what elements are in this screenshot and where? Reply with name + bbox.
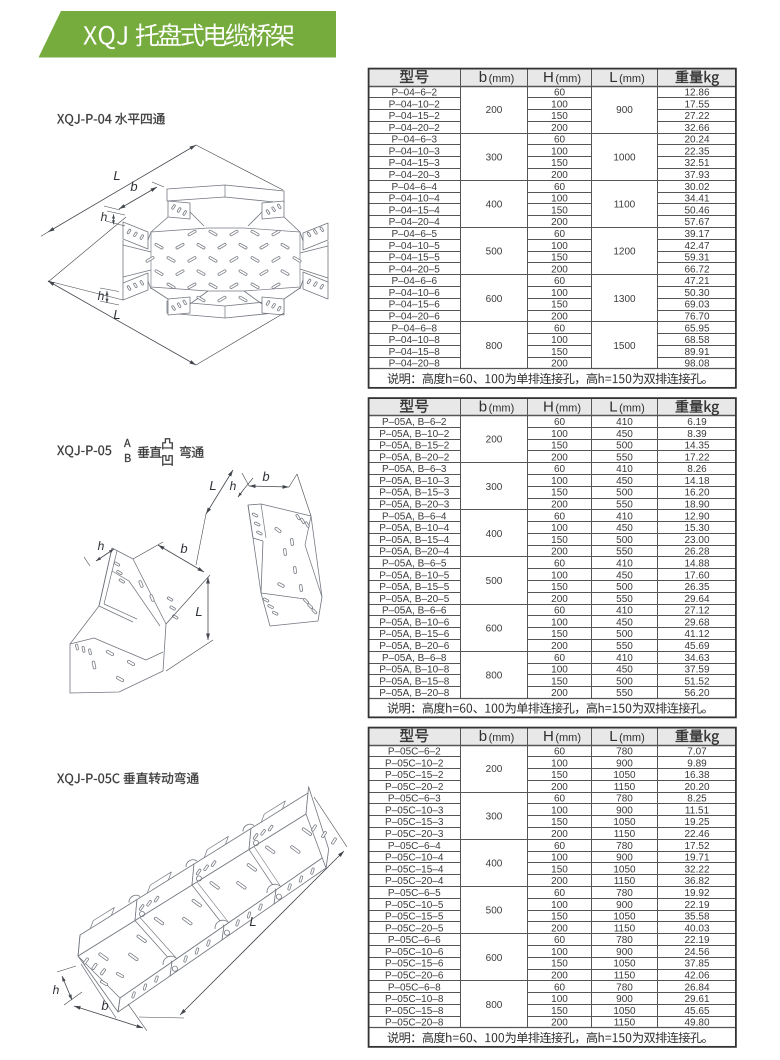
svg-text:P–04–20–8: P–04–20–8	[389, 359, 441, 370]
svg-text:19.71: 19.71	[684, 853, 709, 864]
svg-text:1150: 1150	[614, 876, 636, 887]
svg-text:200: 200	[551, 876, 568, 887]
svg-text:200: 200	[551, 971, 568, 982]
svg-text:P–04–20–2: P–04–20–2	[389, 123, 441, 134]
svg-text:150: 150	[551, 582, 568, 593]
svg-text:410: 410	[616, 653, 633, 664]
svg-text:b: b	[101, 998, 108, 1013]
svg-text:500: 500	[616, 676, 633, 687]
svg-text:410: 410	[616, 558, 633, 569]
svg-text:1050: 1050	[613, 864, 636, 875]
svg-text:98.08: 98.08	[684, 359, 709, 370]
svg-text:410: 410	[616, 606, 633, 617]
svg-text:h: h	[230, 479, 237, 493]
svg-text:P–04–15–3: P–04–15–3	[389, 158, 441, 169]
svg-text:12.86: 12.86	[684, 87, 709, 98]
svg-text:500: 500	[486, 576, 503, 587]
svg-text:780: 780	[616, 746, 633, 757]
svg-text:57.67: 57.67	[684, 217, 709, 228]
svg-text:17.60: 17.60	[684, 570, 709, 581]
svg-text:200: 200	[486, 105, 503, 116]
svg-text:37.59: 37.59	[684, 665, 709, 676]
svg-text:P–05C–15–5: P–05C–15–5	[385, 912, 444, 923]
svg-text:P–05C–15–6: P–05C–15–6	[385, 959, 444, 970]
svg-text:39.17: 39.17	[684, 229, 709, 240]
svg-text:P–05A, B–6–8: P–05A, B–6–8	[382, 653, 447, 664]
svg-text:P–05A, B–6–2: P–05A, B–6–2	[382, 417, 447, 428]
svg-text:200: 200	[486, 764, 503, 775]
svg-text:9.89: 9.89	[687, 758, 707, 769]
svg-text:P–05C–20–5: P–05C–20–5	[385, 923, 444, 934]
svg-text:8.25: 8.25	[687, 794, 707, 805]
svg-text:400: 400	[486, 529, 503, 540]
svg-text:51.52: 51.52	[684, 676, 709, 687]
svg-text:P–05C–15–4: P–05C–15–4	[385, 864, 444, 875]
svg-text:36.82: 36.82	[684, 876, 709, 887]
svg-text:900: 900	[616, 805, 633, 816]
svg-text:P–05A, B–15–5: P–05A, B–15–5	[379, 582, 449, 593]
svg-text:16.38: 16.38	[684, 770, 709, 781]
svg-text:(mm): (mm)	[555, 402, 581, 414]
svg-text:P–04–6–2: P–04–6–2	[391, 87, 437, 98]
svg-text:H: H	[543, 69, 554, 86]
svg-text:450: 450	[616, 665, 633, 676]
svg-text:22.35: 22.35	[684, 146, 709, 157]
svg-text:1050: 1050	[613, 959, 636, 970]
svg-text:200: 200	[551, 829, 568, 840]
svg-text:L: L	[113, 168, 120, 183]
svg-text:600: 600	[486, 623, 503, 634]
svg-text:450: 450	[616, 523, 633, 534]
svg-text:60: 60	[554, 135, 566, 146]
svg-text:900: 900	[616, 853, 633, 864]
svg-text:P–04–20–6: P–04–20–6	[389, 312, 441, 323]
svg-text:P–05A, B–15–2: P–05A, B–15–2	[379, 441, 449, 452]
svg-text:500: 500	[616, 582, 633, 593]
svg-text:150: 150	[551, 441, 568, 452]
svg-text:P–04–6–8: P–04–6–8	[391, 323, 437, 334]
svg-text:1150: 1150	[614, 782, 636, 793]
svg-text:100: 100	[551, 523, 568, 534]
svg-text:P–04–15–2: P–04–15–2	[389, 111, 441, 122]
svg-text:1000: 1000	[613, 152, 636, 163]
svg-text:100: 100	[551, 994, 568, 1005]
svg-text:P–05C–10–4: P–05C–10–4	[385, 853, 444, 864]
svg-text:P–04–15–8: P–04–15–8	[389, 347, 441, 358]
svg-text:P–05A, B–20–8: P–05A, B–20–8	[379, 688, 449, 699]
svg-text:66.72: 66.72	[684, 264, 709, 275]
svg-text:60: 60	[554, 935, 566, 946]
svg-text:900: 900	[616, 900, 633, 911]
svg-text:550: 550	[616, 688, 633, 699]
svg-text:150: 150	[551, 1006, 568, 1017]
svg-text:14.18: 14.18	[684, 476, 709, 487]
svg-text:150: 150	[551, 158, 568, 169]
svg-text:22.19: 22.19	[684, 935, 709, 946]
svg-text:1500: 1500	[613, 341, 636, 352]
svg-text:P–04–6–4: P–04–6–4	[391, 182, 437, 193]
svg-text:1150: 1150	[614, 829, 636, 840]
svg-text:56.20: 56.20	[684, 688, 709, 699]
svg-text:P–05A, B–15–8: P–05A, B–15–8	[379, 676, 449, 687]
svg-text:b: b	[130, 179, 137, 194]
svg-text:P–05C–6–4: P–05C–6–4	[388, 841, 441, 852]
svg-text:1050: 1050	[613, 1006, 636, 1017]
svg-text:1200: 1200	[613, 247, 636, 258]
svg-text:200: 200	[551, 500, 568, 511]
svg-text:37.93: 37.93	[684, 170, 709, 181]
svg-text:19.25: 19.25	[684, 817, 709, 828]
svg-text:6.19: 6.19	[687, 417, 707, 428]
svg-text:550: 550	[616, 594, 633, 605]
svg-text:200: 200	[551, 452, 568, 463]
svg-text:P–05C–6–6: P–05C–6–6	[388, 935, 441, 946]
svg-text:45.69: 45.69	[684, 641, 709, 652]
svg-text:P–04–15–5: P–04–15–5	[389, 253, 441, 264]
svg-text:P–04–10–5: P–04–10–5	[389, 241, 441, 252]
svg-text:45.65: 45.65	[684, 1006, 709, 1017]
svg-text:P–05C–6–2: P–05C–6–2	[388, 746, 441, 757]
svg-text:16.20: 16.20	[684, 488, 709, 499]
svg-text:b: b	[479, 399, 487, 416]
svg-text:P–05A, B–6–5: P–05A, B–6–5	[382, 558, 447, 569]
svg-text:200: 200	[486, 435, 503, 446]
svg-text:24.56: 24.56	[684, 947, 709, 958]
svg-text:100: 100	[551, 99, 568, 110]
svg-text:(mm): (mm)	[489, 732, 515, 744]
svg-text:P–04–20–5: P–04–20–5	[389, 264, 441, 275]
svg-text:100: 100	[551, 853, 568, 864]
svg-text:150: 150	[551, 300, 568, 311]
svg-text:P–05A, B–10–6: P–05A, B–10–6	[379, 617, 449, 628]
svg-text:P–05C–20–4: P–05C–20–4	[385, 876, 444, 887]
svg-text:200: 200	[551, 217, 568, 228]
svg-text:P–05A, B–6–4: P–05A, B–6–4	[382, 511, 447, 522]
svg-text:29.64: 29.64	[684, 594, 709, 605]
svg-text:68.58: 68.58	[684, 335, 709, 346]
svg-text:35.58: 35.58	[684, 912, 709, 923]
svg-text:60: 60	[554, 746, 566, 757]
svg-text:29.61: 29.61	[684, 994, 709, 1005]
svg-text:100: 100	[551, 429, 568, 440]
svg-text:150: 150	[551, 535, 568, 546]
svg-text:300: 300	[486, 482, 503, 493]
svg-text:P–05C–10–8: P–05C–10–8	[385, 994, 444, 1005]
svg-text:400: 400	[486, 859, 503, 870]
svg-text:b: b	[262, 469, 269, 484]
svg-text:14.88: 14.88	[684, 558, 709, 569]
svg-text:100: 100	[551, 665, 568, 676]
svg-text:100: 100	[551, 335, 568, 346]
svg-text:410: 410	[616, 417, 633, 428]
svg-text:150: 150	[551, 912, 568, 923]
svg-text:32.51: 32.51	[684, 158, 709, 169]
svg-text:780: 780	[616, 888, 633, 899]
svg-text:1050: 1050	[613, 770, 636, 781]
svg-text:60: 60	[554, 982, 566, 993]
svg-text:(mm): (mm)	[489, 73, 515, 85]
svg-text:150: 150	[551, 205, 568, 216]
svg-text:34.63: 34.63	[684, 653, 709, 664]
svg-text:100: 100	[551, 570, 568, 581]
svg-text:P–05A, B–20–3: P–05A, B–20–3	[379, 500, 449, 511]
svg-text:26.35: 26.35	[684, 582, 709, 593]
svg-text:150: 150	[551, 629, 568, 640]
svg-text:P–04–10–2: P–04–10–2	[389, 99, 441, 110]
svg-text:P–05C–10–5: P–05C–10–5	[385, 900, 444, 911]
svg-text:22.19: 22.19	[684, 900, 709, 911]
svg-text:410: 410	[616, 511, 633, 522]
svg-text:P–05C–15–3: P–05C–15–3	[385, 817, 444, 828]
svg-text:b: b	[180, 541, 187, 556]
svg-text:(mm): (mm)	[555, 732, 581, 744]
svg-text:L: L	[195, 604, 202, 619]
svg-text:P–05A, B–20–5: P–05A, B–20–5	[379, 594, 449, 605]
svg-text:12.90: 12.90	[684, 511, 709, 522]
svg-text:37.85: 37.85	[684, 959, 709, 970]
svg-text:200: 200	[551, 123, 568, 134]
svg-text:100: 100	[551, 476, 568, 487]
svg-text:27.22: 27.22	[684, 111, 709, 122]
svg-text:76.70: 76.70	[684, 312, 709, 323]
svg-text:(mm): (mm)	[489, 402, 515, 414]
svg-text:100: 100	[551, 194, 568, 205]
svg-text:h: h	[98, 539, 105, 553]
svg-text:L: L	[209, 478, 216, 493]
svg-text:49.80: 49.80	[684, 1018, 709, 1029]
svg-text:900: 900	[616, 758, 633, 769]
svg-text:P–05C–15–2: P–05C–15–2	[385, 770, 444, 781]
svg-text:500: 500	[616, 629, 633, 640]
svg-text:11.51: 11.51	[685, 805, 710, 816]
svg-text:100: 100	[551, 288, 568, 299]
svg-text:b: b	[479, 69, 487, 86]
svg-text:200: 200	[551, 170, 568, 181]
svg-text:200: 200	[551, 688, 568, 699]
svg-text:P–04–6–5: P–04–6–5	[391, 229, 437, 240]
svg-text:18.90: 18.90	[684, 500, 709, 511]
svg-text:L: L	[249, 914, 256, 929]
svg-text:150: 150	[551, 488, 568, 499]
svg-text:200: 200	[551, 923, 568, 934]
svg-text:19.92: 19.92	[684, 888, 709, 899]
svg-text:P–05A, B–10–3: P–05A, B–10–3	[379, 476, 449, 487]
svg-text:150: 150	[551, 817, 568, 828]
svg-text:P–05A, B–20–2: P–05A, B–20–2	[379, 452, 449, 463]
svg-text:200: 200	[551, 641, 568, 652]
svg-text:P–04–10–6: P–04–10–6	[389, 288, 441, 299]
svg-text:550: 550	[616, 641, 633, 652]
svg-text:200: 200	[551, 782, 568, 793]
svg-text:900: 900	[616, 947, 633, 958]
svg-text:P–05C–6–8: P–05C–6–8	[388, 982, 441, 993]
svg-text:P–05C–20–6: P–05C–20–6	[385, 971, 444, 982]
svg-text:1050: 1050	[613, 912, 636, 923]
svg-text:60: 60	[554, 653, 566, 664]
svg-text:450: 450	[616, 570, 633, 581]
svg-text:P–04–15–6: P–04–15–6	[389, 300, 441, 311]
svg-text:100: 100	[551, 146, 568, 157]
svg-text:P–05A, B–10–8: P–05A, B–10–8	[379, 665, 449, 676]
svg-text:780: 780	[616, 794, 633, 805]
svg-text:P–05A, B–6–3: P–05A, B–6–3	[382, 464, 447, 475]
svg-text:L: L	[609, 69, 617, 86]
svg-text:60: 60	[554, 794, 566, 805]
svg-text:42.06: 42.06	[684, 971, 709, 982]
svg-text:200: 200	[551, 312, 568, 323]
svg-text:100: 100	[551, 947, 568, 958]
svg-text:60: 60	[554, 229, 566, 240]
svg-text:P–04–6–6: P–04–6–6	[391, 276, 437, 287]
svg-text:P–05C–20–3: P–05C–20–3	[385, 829, 444, 840]
svg-text:P–04–20–4: P–04–20–4	[389, 217, 441, 228]
svg-text:100: 100	[551, 241, 568, 252]
svg-text:26.28: 26.28	[684, 547, 709, 558]
svg-text:500: 500	[616, 535, 633, 546]
svg-text:P–05A, B–20–4: P–05A, B–20–4	[379, 547, 449, 558]
svg-text:8.39: 8.39	[687, 429, 707, 440]
svg-text:69.03: 69.03	[684, 300, 709, 311]
svg-text:200: 200	[551, 1018, 568, 1029]
svg-text:P–05C–10–6: P–05C–10–6	[385, 947, 444, 958]
svg-text:60: 60	[554, 323, 566, 334]
svg-text:100: 100	[551, 900, 568, 911]
svg-text:17.22: 17.22	[684, 452, 709, 463]
svg-text:P–05C–6–5: P–05C–6–5	[388, 888, 441, 899]
svg-text:47.21: 47.21	[684, 276, 709, 287]
svg-text:H: H	[543, 399, 554, 416]
svg-text:22.46: 22.46	[684, 829, 709, 840]
svg-text:60: 60	[554, 87, 566, 98]
svg-text:(mm): (mm)	[619, 732, 645, 744]
svg-text:(mm): (mm)	[555, 73, 581, 85]
svg-text:800: 800	[486, 341, 503, 352]
svg-text:89.91: 89.91	[684, 347, 709, 358]
svg-text:800: 800	[486, 670, 503, 681]
svg-text:1050: 1050	[613, 817, 636, 828]
svg-text:60: 60	[554, 606, 566, 617]
svg-text:17.55: 17.55	[684, 99, 709, 110]
svg-text:30.02: 30.02	[684, 182, 709, 193]
svg-text:40.03: 40.03	[684, 923, 709, 934]
svg-text:400: 400	[486, 200, 503, 211]
svg-text:150: 150	[551, 111, 568, 122]
svg-text:60: 60	[554, 276, 566, 287]
svg-text:200: 200	[551, 359, 568, 370]
svg-text:41.12: 41.12	[684, 629, 709, 640]
svg-text:P–05C–10–3: P–05C–10–3	[385, 805, 444, 816]
svg-text:800: 800	[486, 1000, 503, 1011]
svg-text:500: 500	[486, 906, 503, 917]
svg-text:15.30: 15.30	[684, 523, 709, 534]
svg-text:P–05C–15–8: P–05C–15–8	[385, 1006, 444, 1017]
svg-text:h: h	[53, 983, 60, 997]
svg-text:100: 100	[551, 617, 568, 628]
svg-text:P–05A, B–6–6: P–05A, B–6–6	[382, 606, 447, 617]
svg-text:42.47: 42.47	[684, 241, 709, 252]
svg-text:550: 550	[616, 500, 633, 511]
svg-text:500: 500	[616, 488, 633, 499]
svg-text:150: 150	[551, 959, 568, 970]
svg-text:60: 60	[554, 558, 566, 569]
svg-text:100: 100	[551, 758, 568, 769]
svg-text:P–05C–20–8: P–05C–20–8	[385, 1018, 444, 1029]
svg-text:60: 60	[554, 841, 566, 852]
svg-text:65.95: 65.95	[684, 323, 709, 334]
svg-text:500: 500	[616, 441, 633, 452]
svg-text:(mm): (mm)	[619, 73, 645, 85]
svg-text:P–05C–6–3: P–05C–6–3	[388, 794, 441, 805]
svg-text:32.22: 32.22	[684, 864, 709, 875]
svg-text:200: 200	[551, 594, 568, 605]
svg-text:60: 60	[554, 464, 566, 475]
svg-text:60: 60	[554, 417, 566, 428]
svg-text:410: 410	[616, 464, 633, 475]
svg-text:P–05A, B–15–3: P–05A, B–15–3	[379, 488, 449, 499]
svg-text:14.35: 14.35	[684, 441, 709, 452]
svg-text:29.68: 29.68	[684, 617, 709, 628]
svg-text:17.52: 17.52	[684, 841, 709, 852]
svg-text:32.66: 32.66	[684, 123, 709, 134]
svg-text:50.46: 50.46	[684, 205, 709, 216]
svg-text:20.24: 20.24	[684, 135, 709, 146]
svg-text:1150: 1150	[614, 1018, 636, 1029]
svg-text:1150: 1150	[614, 971, 636, 982]
svg-text:1150: 1150	[614, 923, 636, 934]
svg-text:200: 200	[551, 264, 568, 275]
svg-text:P–04–15–4: P–04–15–4	[389, 205, 441, 216]
svg-text:900: 900	[616, 994, 633, 1005]
svg-text:150: 150	[551, 864, 568, 875]
svg-text:h: h	[98, 289, 105, 303]
svg-text:150: 150	[551, 770, 568, 781]
svg-text:100: 100	[551, 805, 568, 816]
svg-text:150: 150	[551, 347, 568, 358]
svg-text:550: 550	[616, 452, 633, 463]
svg-text:b: b	[479, 728, 487, 745]
svg-text:550: 550	[616, 547, 633, 558]
svg-text:500: 500	[486, 247, 503, 258]
svg-text:60: 60	[554, 511, 566, 522]
svg-text:780: 780	[616, 935, 633, 946]
svg-text:P–04–6–3: P–04–6–3	[391, 135, 437, 146]
svg-text:59.31: 59.31	[684, 253, 709, 264]
svg-text:P–04–10–4: P–04–10–4	[389, 194, 441, 205]
svg-text:1300: 1300	[613, 294, 636, 305]
svg-text:P–05C–10–2: P–05C–10–2	[385, 758, 444, 769]
svg-text:P–04–20–3: P–04–20–3	[389, 170, 441, 181]
svg-text:600: 600	[486, 953, 503, 964]
svg-text:P–05A, B–10–4: P–05A, B–10–4	[379, 523, 449, 534]
svg-text:P–05C–20–2: P–05C–20–2	[385, 782, 444, 793]
svg-text:7.07: 7.07	[687, 746, 707, 757]
svg-text:P–05A, B–15–4: P–05A, B–15–4	[379, 535, 449, 546]
svg-text:L: L	[609, 399, 617, 416]
svg-text:P–05A, B–20–6: P–05A, B–20–6	[379, 641, 449, 652]
svg-text:P–05A, B–15–6: P–05A, B–15–6	[379, 629, 449, 640]
svg-text:P–05A, B–10–2: P–05A, B–10–2	[379, 429, 449, 440]
svg-text:P–04–10–3: P–04–10–3	[389, 146, 441, 157]
svg-text:450: 450	[616, 476, 633, 487]
svg-text:60: 60	[554, 888, 566, 899]
svg-text:27.12: 27.12	[684, 606, 709, 617]
svg-text:L: L	[609, 728, 617, 745]
svg-text:450: 450	[616, 429, 633, 440]
svg-text:50.30: 50.30	[684, 288, 709, 299]
svg-text:300: 300	[486, 811, 503, 822]
svg-text:(mm): (mm)	[619, 402, 645, 414]
svg-text:300: 300	[486, 152, 503, 163]
